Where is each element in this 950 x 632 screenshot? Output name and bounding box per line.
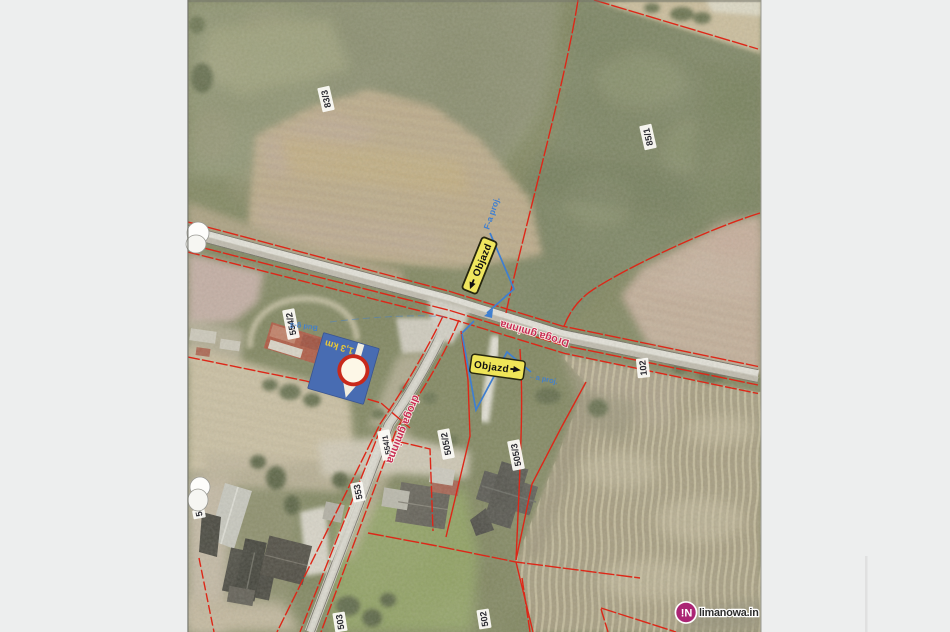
svg-text:102: 102 — [637, 360, 649, 376]
svg-text:!N: !N — [681, 607, 693, 619]
svg-text:limanowa.in: limanowa.in — [699, 607, 759, 619]
